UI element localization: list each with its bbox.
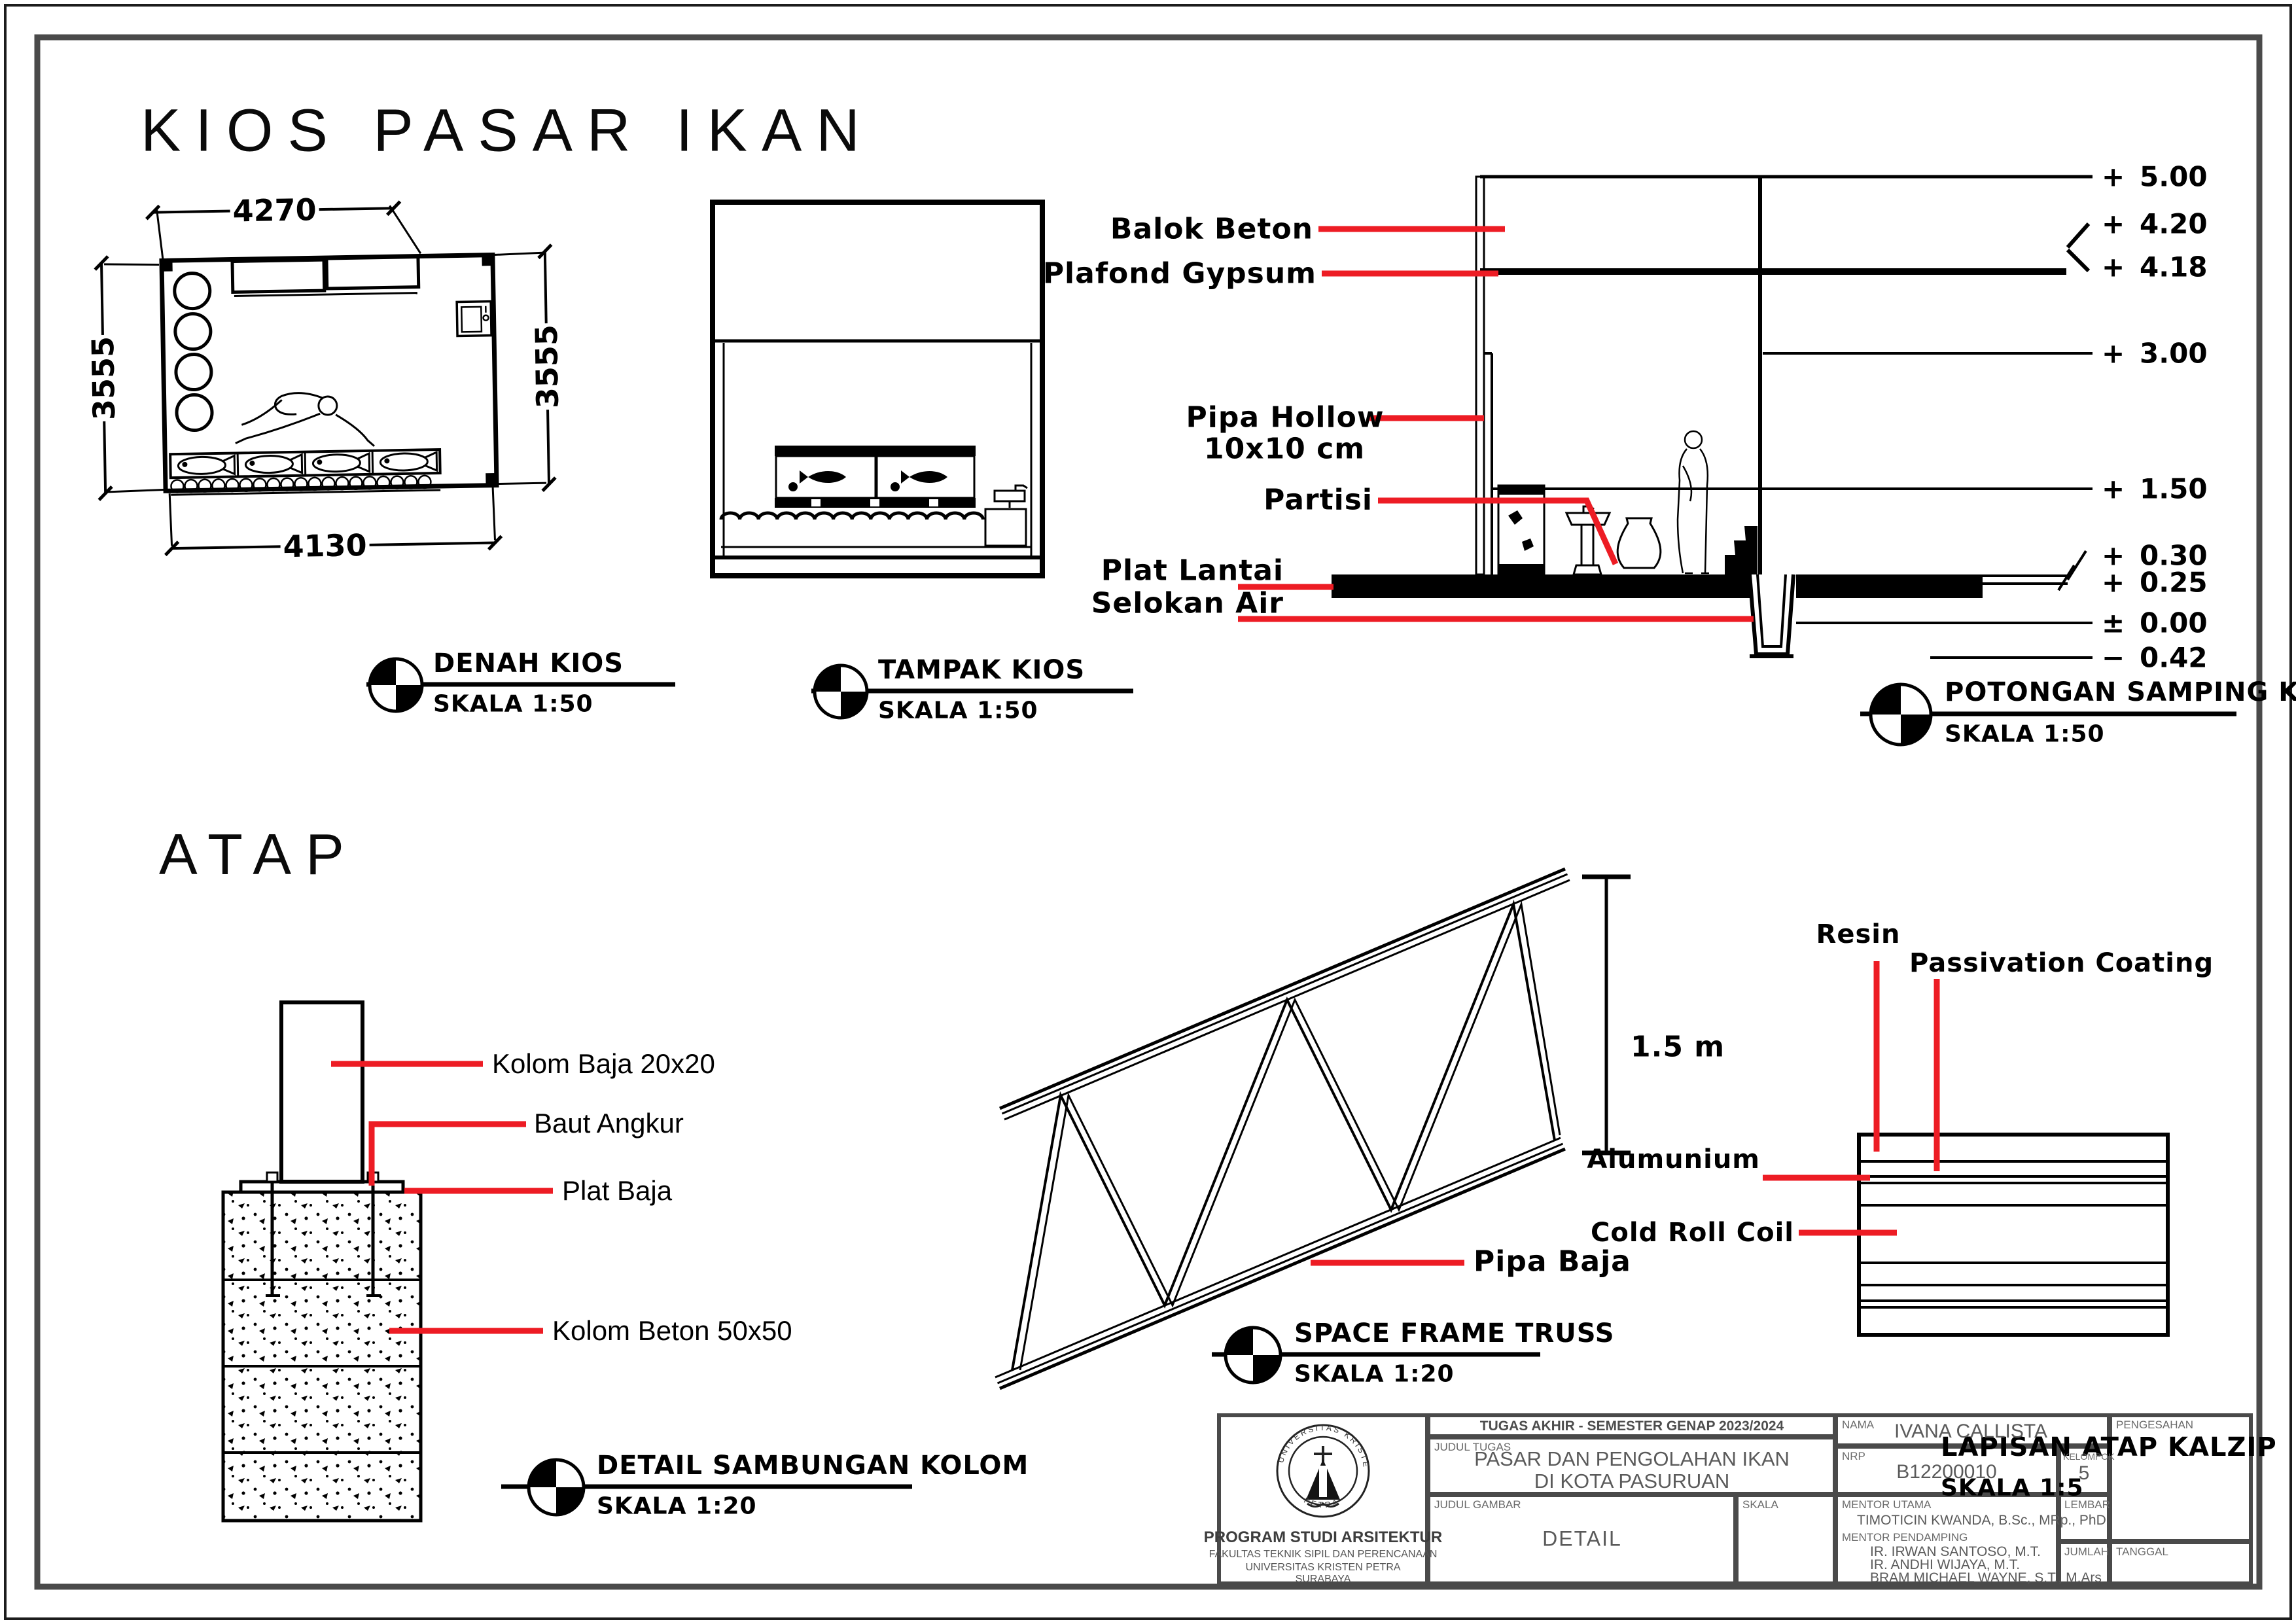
label-plat-lantai: Plat Lantai: [1101, 554, 1284, 588]
plan-table-icon: [327, 256, 419, 289]
label-baut-angkur: Baut Angkur: [534, 1108, 684, 1139]
label-selokan-air: Selokan Air: [1091, 587, 1284, 620]
level-mark: +0.25: [2102, 567, 2208, 599]
level-mark: +3.00: [2102, 338, 2208, 370]
detail-kolom-marker-title: DETAIL SAMBUNGAN KOLOM: [597, 1451, 1029, 1481]
truss-marker-scale: SKALA 1:20: [1294, 1361, 1455, 1388]
mentor-pendamping-label: MENTOR PENDAMPING: [1842, 1531, 1968, 1544]
elevation-sink-icon: [995, 485, 1027, 508]
kelompok-value: 5: [2079, 1462, 2090, 1485]
label-partisi: Partisi: [1263, 484, 1373, 517]
label-balok-beton: Balok Beton: [1110, 213, 1313, 246]
denah-marker-scale: SKALA 1:50: [433, 691, 593, 718]
label-plafond-gypsum: Plafond Gypsum: [1043, 257, 1316, 291]
section-vase-icon: [1617, 518, 1661, 568]
dim-top: 4270: [232, 192, 317, 228]
fakultas: FAKULTAS TEKNIK SIPIL DAN PERENCANAAN: [1209, 1549, 1438, 1561]
level-mark: +4.18: [2102, 251, 2208, 283]
potongan-marker-title: POTONGAN SAMPING KIOS: [1945, 677, 2296, 707]
skala-label: SKALA: [1742, 1498, 1778, 1511]
section-steps-icon: [1725, 526, 1757, 574]
section-gutter-icon: [1750, 574, 1793, 656]
dim-left: 3555: [85, 336, 122, 420]
label-resin: Resin: [1816, 919, 1901, 949]
column-detail-drawing: [223, 1002, 421, 1521]
pendamping-3: BRAM MICHAEL WAYNE, S.T., M.Ars: [1870, 1570, 2102, 1586]
pengesahan-label: PENGESAHAN: [2116, 1419, 2193, 1432]
nrp-label: NRP: [1842, 1450, 1865, 1463]
label-pipa-hollow: Pipa Hollow: [1186, 401, 1385, 434]
truss-drawing: [995, 869, 1631, 1388]
plan-fish-icons: [178, 452, 436, 475]
program-studi: PROGRAM STUDI ARSITEKTUR: [1204, 1528, 1442, 1547]
tanggal-label: TANGGAL: [2116, 1545, 2168, 1559]
potongan-marker-scale: SKALA 1:50: [1945, 721, 2105, 748]
label-alumunium: Alumunium: [1587, 1144, 1760, 1174]
level-mark: +4.20: [2102, 208, 2208, 240]
elevation-drawing: [713, 202, 1042, 576]
level-mark: +1.50: [2102, 473, 2208, 505]
plan-stool-icon: [177, 395, 213, 431]
floor-plan-drawing: 4270 4130 3555 3555: [82, 188, 568, 568]
mentor-utama-label: MENTOR UTAMA: [1842, 1498, 1931, 1511]
judul-tugas-line2: DI KOTA PASURUAN: [1534, 1470, 1730, 1493]
elevation-wave-icon: [721, 513, 983, 520]
plan-table-icon: [232, 260, 325, 292]
label-pipa-baja: Pipa Baja: [1474, 1245, 1631, 1279]
detail-kolom-marker-scale: SKALA 1:20: [597, 1493, 757, 1520]
jumlah-label: JUMLAH: [2064, 1545, 2109, 1559]
nrp-value: B12200010: [1896, 1461, 1997, 1483]
kalzip-leader-lines: [1763, 961, 1937, 1233]
level-mark: +5.00: [2102, 161, 2208, 193]
kelompok-label: KELOMPOK: [2063, 1451, 2115, 1462]
level-mark: −0.42: [2102, 642, 2208, 674]
plan-person-icon: [235, 392, 374, 449]
judul-gambar-label: JUDUL GAMBAR: [1434, 1498, 1521, 1511]
label-passivation: Passivation Coating: [1909, 948, 2214, 978]
truss-dimension: [1582, 877, 1631, 1153]
nama-value: IVANA CALLISTA: [1894, 1421, 2047, 1443]
tampak-marker-scale: SKALA 1:50: [878, 697, 1038, 724]
page-title: KIOS PASAR IKAN: [141, 97, 874, 166]
label-cold-roll-coil: Cold Roll Coil: [1591, 1218, 1794, 1248]
plan-stool-icon: [174, 273, 210, 309]
truss-marker-title: SPACE FRAME TRUSS: [1294, 1318, 1615, 1349]
dim-bottom: 4130: [283, 527, 367, 564]
label-plat-baja: Plat Baja: [562, 1175, 672, 1207]
atap-section-title: ATAP: [159, 821, 359, 888]
drawing-sheet: 4270 4130 3555 3555: [0, 0, 2296, 1624]
dim-right: 3555: [529, 325, 565, 409]
plan-sink-icon: [457, 302, 491, 336]
level-mark: ±0.00: [2102, 607, 2208, 639]
kalzip-drawing: [1859, 1135, 2168, 1335]
lembar-label: LEMBAR: [2064, 1498, 2110, 1511]
universitas: UNIVERSITAS KRISTEN PETRA: [1245, 1562, 1400, 1574]
kota: SURABAYA: [1296, 1574, 1351, 1585]
tampak-marker-title: TAMPAK KIOS: [878, 655, 1085, 685]
nama-label: NAMA: [1842, 1419, 1874, 1432]
label-pipa-hollow-size: 10x10 cm: [1204, 432, 1365, 466]
plan-stool-icon: [175, 313, 211, 349]
label-kolom-baja: Kolom Baja 20x20: [492, 1048, 715, 1080]
mentor-utama-value: TIMOTICIN KWANDA, B.Sc., MRp., PhD: [1857, 1513, 2106, 1528]
plan-stool-icon: [175, 354, 211, 390]
judul-gambar-value: DETAIL: [1542, 1527, 1622, 1551]
section-person-icon: [1678, 431, 1709, 573]
truss-dim-label: 1.5 m: [1631, 1031, 1725, 1064]
titleblock-header: TUGAS AKHIR - SEMESTER GENAP 2023/2024: [1480, 1419, 1784, 1434]
denah-marker-title: DENAH KIOS: [433, 648, 624, 679]
label-kolom-beton: Kolom Beton 50x50: [552, 1315, 792, 1347]
judul-tugas-line1: PASAR DAN PENGOLAHAN IKAN: [1474, 1447, 1790, 1471]
